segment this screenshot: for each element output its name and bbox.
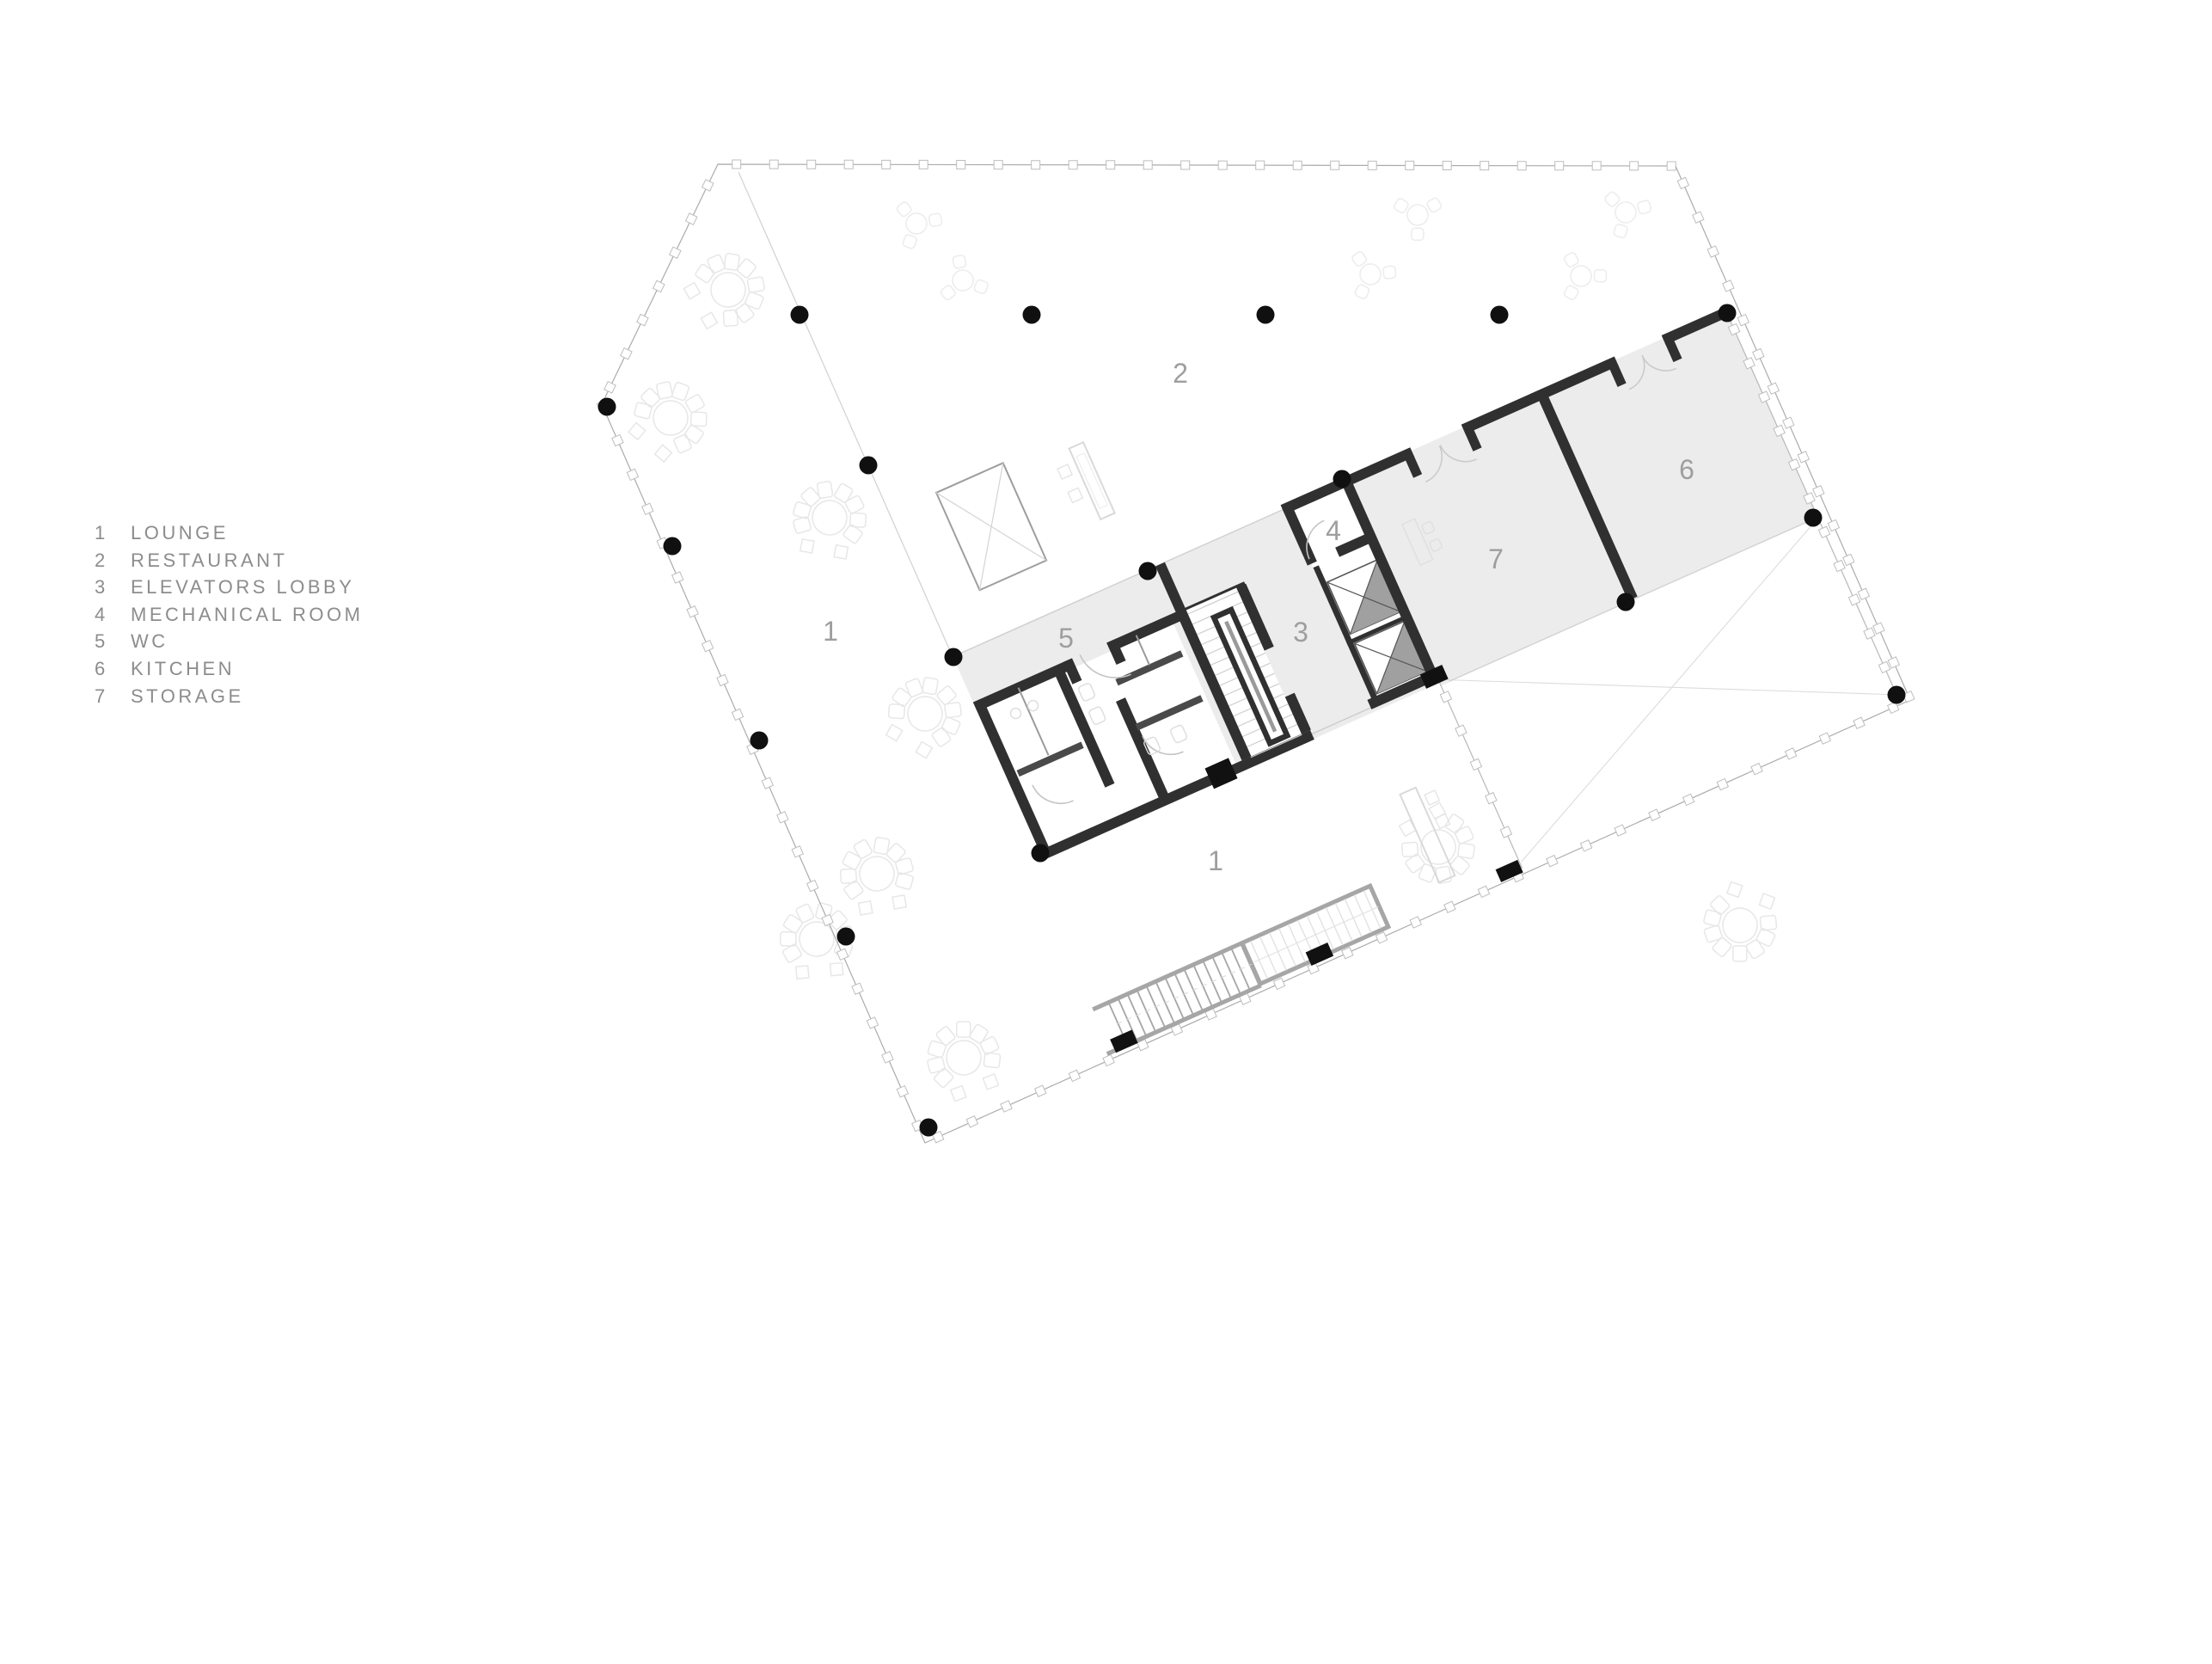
svg-text:2: 2 <box>95 550 108 571</box>
svg-text:5: 5 <box>1058 623 1074 654</box>
svg-text:5: 5 <box>95 630 108 652</box>
svg-text:6: 6 <box>95 658 108 679</box>
svg-text:6: 6 <box>1679 454 1694 485</box>
svg-text:KITCHEN: KITCHEN <box>131 658 235 679</box>
svg-text:2: 2 <box>1173 358 1188 389</box>
svg-text:1: 1 <box>1208 845 1223 876</box>
svg-text:WC: WC <box>131 630 169 652</box>
svg-text:7: 7 <box>1488 543 1504 574</box>
svg-text:STORAGE: STORAGE <box>131 685 244 707</box>
svg-text:4: 4 <box>1326 515 1341 546</box>
svg-text:LOUNGE: LOUNGE <box>131 522 229 543</box>
svg-text:MECHANICAL ROOM: MECHANICAL ROOM <box>131 604 363 625</box>
svg-text:7: 7 <box>95 685 108 707</box>
svg-text:4: 4 <box>95 604 108 625</box>
svg-text:3: 3 <box>1293 617 1308 648</box>
svg-text:3: 3 <box>95 576 108 598</box>
svg-text:1: 1 <box>95 522 108 543</box>
svg-text:RESTAURANT: RESTAURANT <box>131 550 288 571</box>
svg-text:1: 1 <box>823 616 838 647</box>
svg-text:ELEVATORS LOBBY: ELEVATORS LOBBY <box>131 576 354 598</box>
